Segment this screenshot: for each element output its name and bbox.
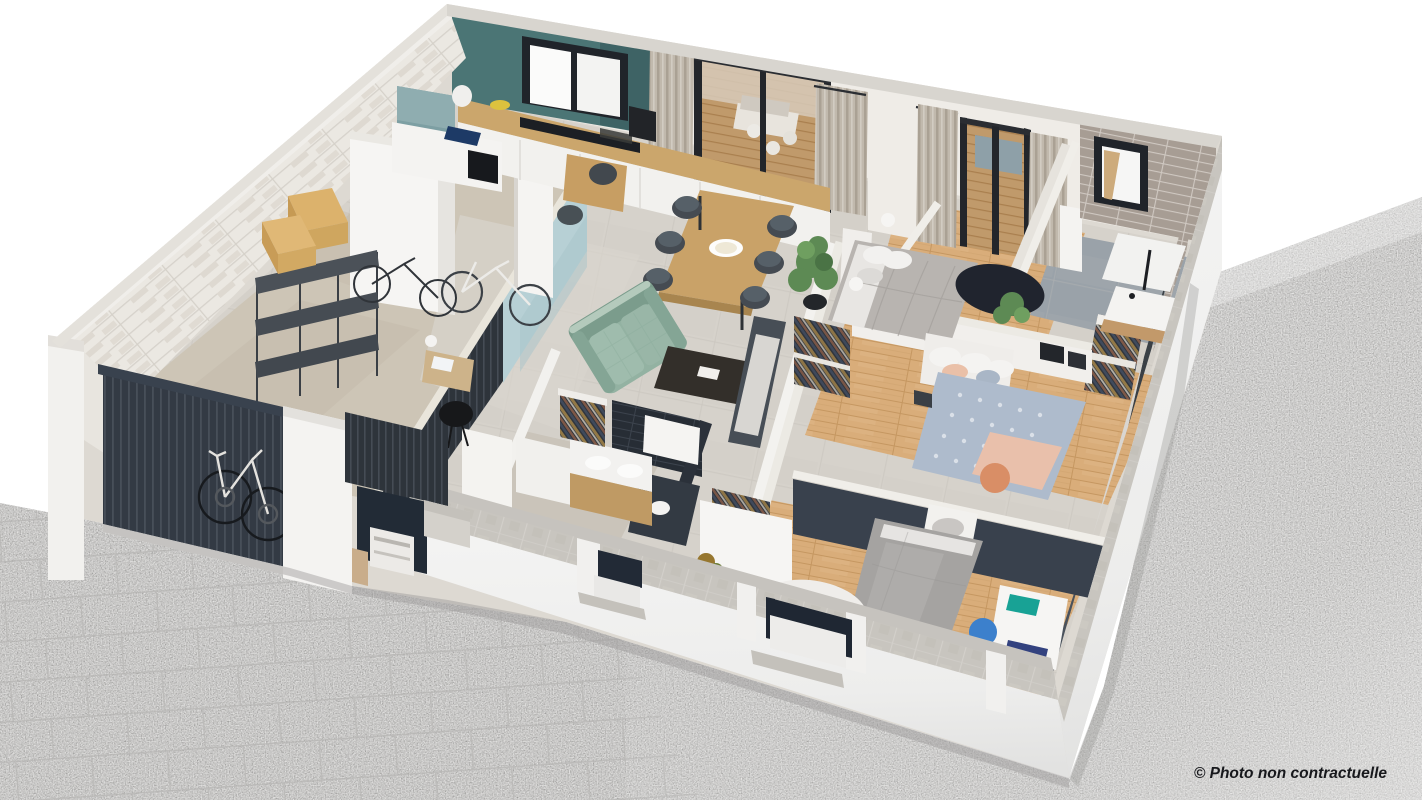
svg-text:© Photo non contractuelle: © Photo non contractuelle: [1194, 765, 1388, 782]
